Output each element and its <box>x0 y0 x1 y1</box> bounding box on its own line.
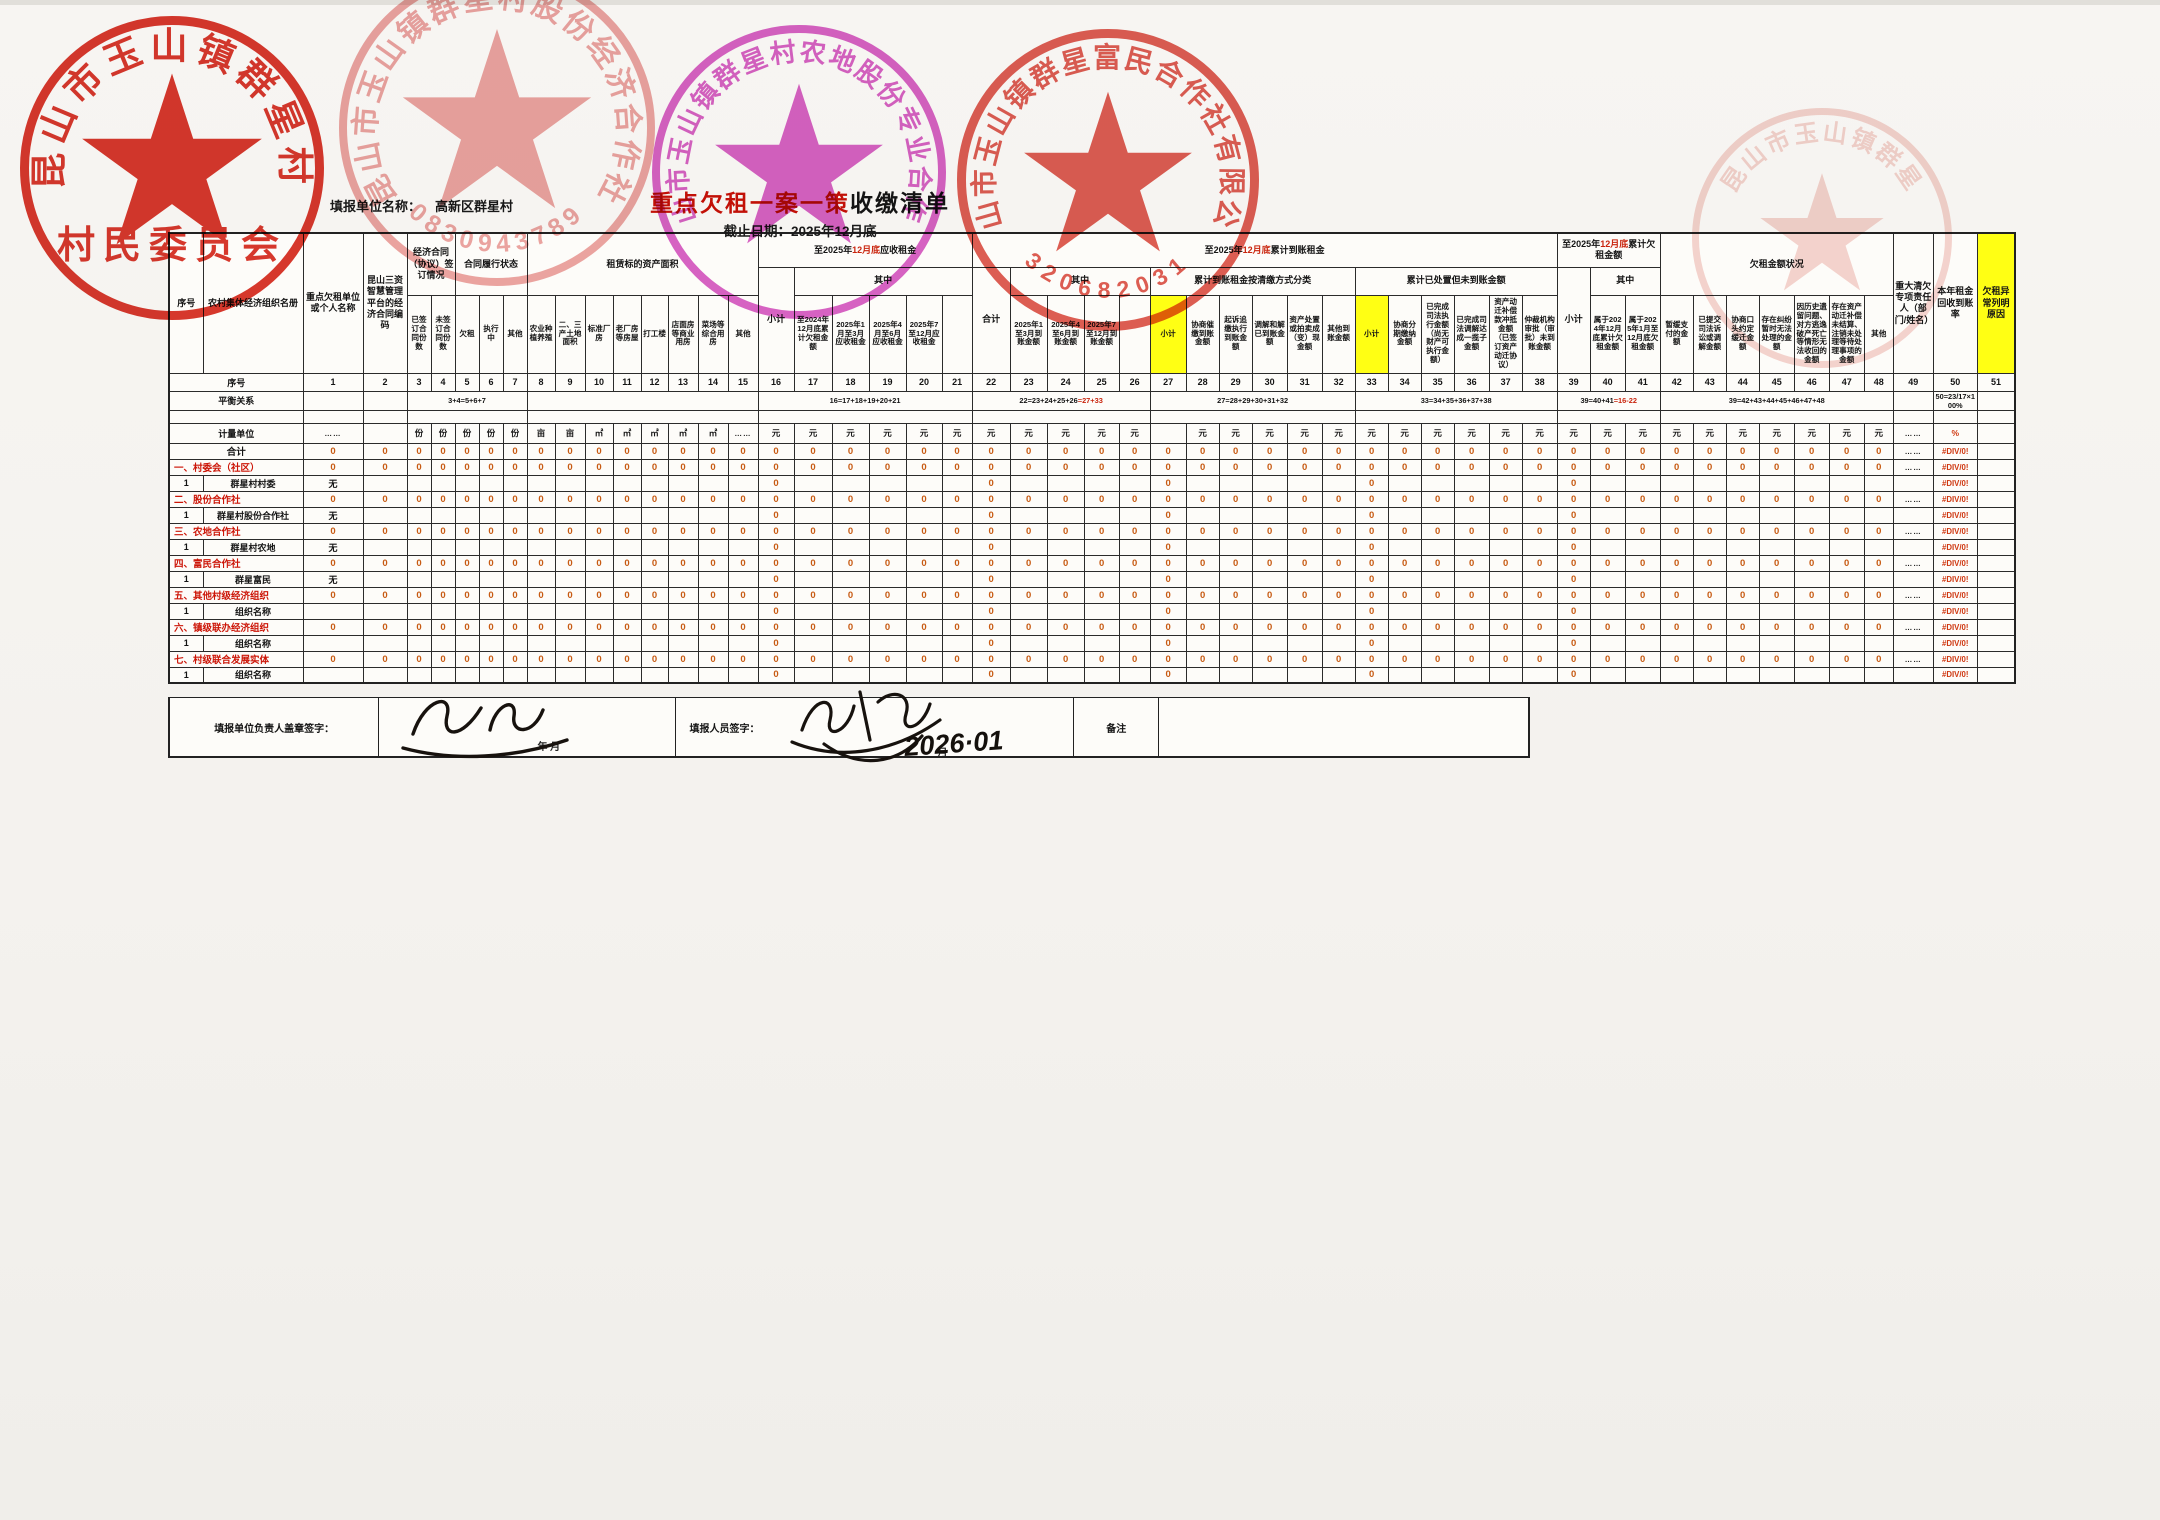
header-text-part: 至2025年 <box>814 245 852 255</box>
value-cell: 0 <box>972 507 1010 523</box>
value-cell <box>1759 475 1794 491</box>
value-cell <box>1322 539 1355 555</box>
value-cell <box>1421 603 1454 619</box>
value-cell: 0 <box>698 523 728 539</box>
debtor-name-cell: 无 <box>303 539 363 555</box>
value-cell: 0 <box>1864 523 1893 539</box>
value-cell: 0 <box>1010 587 1047 603</box>
spacer-cell <box>407 410 527 423</box>
value-cell: #DIV/0! <box>1933 619 1977 635</box>
value-cell <box>1693 667 1726 683</box>
value-cell: 0 <box>668 587 698 603</box>
value-cell <box>1590 667 1625 683</box>
value-cell: 0 <box>758 603 794 619</box>
value-cell <box>1660 571 1693 587</box>
value-cell <box>1794 603 1829 619</box>
value-cell <box>906 667 942 683</box>
value-cell: 0 <box>758 635 794 651</box>
value-cell <box>1590 635 1625 651</box>
value-cell <box>668 571 698 587</box>
value-cell <box>503 475 527 491</box>
serial-row-label: 序号 <box>169 373 303 391</box>
value-cell: 0 <box>728 587 758 603</box>
value-cell <box>1119 507 1150 523</box>
value-cell: 0 <box>585 523 613 539</box>
value-cell: …… <box>1893 651 1933 667</box>
debtor-name-cell <box>303 635 363 651</box>
value-cell <box>1893 475 1933 491</box>
column-header: 资产处置或拍卖成（变）现金额 <box>1287 295 1322 373</box>
value-cell <box>363 507 407 523</box>
value-cell <box>455 539 479 555</box>
value-cell: 0 <box>407 443 431 459</box>
value-cell: 0 <box>869 523 906 539</box>
organization-name: 群星村农地 <box>203 539 303 555</box>
value-cell: 0 <box>407 491 431 507</box>
value-cell: 0 <box>555 651 585 667</box>
value-cell: 0 <box>1010 443 1047 459</box>
unit-cell: ㎡ <box>698 423 728 443</box>
value-cell: 0 <box>942 619 972 635</box>
value-cell: 0 <box>1119 459 1150 475</box>
column-number: 45 <box>1759 373 1794 391</box>
value-cell: 0 <box>613 619 641 635</box>
balance-formula: 33=34+35+36+37+38 <box>1355 391 1557 410</box>
column-number: 23 <box>1010 373 1047 391</box>
value-cell <box>1522 603 1557 619</box>
value-cell: 0 <box>1322 619 1355 635</box>
value-cell: 0 <box>1590 523 1625 539</box>
value-cell <box>1977 443 2015 459</box>
formula-black: 16=17+18+19+20+21 <box>830 396 901 405</box>
value-cell: 0 <box>1454 555 1489 571</box>
value-cell: 0 <box>503 651 527 667</box>
value-cell: 0 <box>1726 651 1759 667</box>
value-cell <box>1660 603 1693 619</box>
value-cell <box>1977 603 2015 619</box>
value-cell <box>431 603 455 619</box>
column-header: 其他 <box>728 295 758 373</box>
value-cell: 0 <box>503 555 527 571</box>
category-label: 四、富民合作社 <box>169 555 303 571</box>
value-cell: 0 <box>1388 459 1421 475</box>
value-cell: 0 <box>455 587 479 603</box>
value-cell: 0 <box>972 667 1010 683</box>
category-label: 三、农地合作社 <box>169 523 303 539</box>
value-cell <box>668 635 698 651</box>
value-cell: 0 <box>1660 491 1693 507</box>
value-cell <box>1660 507 1693 523</box>
value-cell <box>1625 571 1660 587</box>
formula-black: 22=23+24+25+26 <box>1019 396 1077 405</box>
value-cell <box>728 475 758 491</box>
formula-red: =16-22 <box>1614 396 1637 405</box>
value-cell: 0 <box>1219 651 1252 667</box>
value-cell <box>942 571 972 587</box>
scanned-document-page: { "document": { "title_red": "重点欠租一案一策",… <box>0 0 2160 1520</box>
value-cell <box>942 667 972 683</box>
unit-cell: 元 <box>1522 423 1557 443</box>
value-cell: 0 <box>1150 555 1186 571</box>
value-cell: 0 <box>668 491 698 507</box>
value-cell: 0 <box>869 555 906 571</box>
column-header: 调解和解已到账金额 <box>1252 295 1287 373</box>
value-cell: 0 <box>1186 587 1219 603</box>
value-cell: 0 <box>1693 555 1726 571</box>
value-cell <box>1794 667 1829 683</box>
value-cell: 0 <box>585 459 613 475</box>
value-cell <box>527 667 555 683</box>
value-cell: 0 <box>1119 555 1150 571</box>
value-cell: 0 <box>758 587 794 603</box>
value-cell <box>503 539 527 555</box>
column-group-header: 重大清欠专项责任人（部门/姓名） <box>1893 233 1933 373</box>
value-cell: 0 <box>698 587 728 603</box>
value-cell: 0 <box>1829 555 1864 571</box>
column-header: 其他到账金额 <box>1322 295 1355 373</box>
value-cell <box>832 475 869 491</box>
value-cell <box>1322 475 1355 491</box>
value-cell <box>942 635 972 651</box>
value-cell: 0 <box>1726 523 1759 539</box>
value-cell <box>1219 603 1252 619</box>
value-cell <box>1421 635 1454 651</box>
value-cell <box>1047 603 1084 619</box>
value-cell <box>1322 667 1355 683</box>
value-cell: 0 <box>431 587 455 603</box>
spacer-cell <box>1557 410 1660 423</box>
value-cell: 0 <box>1794 619 1829 635</box>
value-cell: 0 <box>1219 459 1252 475</box>
value-cell <box>1252 635 1287 651</box>
page-title-red-part: 重点欠租一案一策 <box>650 190 850 216</box>
header-text-part: 12月底 <box>1600 239 1628 249</box>
category-label: 七、村级联合发展实体 <box>169 651 303 667</box>
value-cell: …… <box>1893 459 1933 475</box>
value-cell <box>1119 539 1150 555</box>
value-cell: 0 <box>1557 635 1590 651</box>
value-cell: 0 <box>363 619 407 635</box>
value-cell: 0 <box>1150 587 1186 603</box>
value-cell <box>1388 475 1421 491</box>
column-subgroup-header: 小计 <box>758 267 794 373</box>
page-title-black-part: 收缴清单 <box>850 190 950 216</box>
value-cell: 0 <box>1322 523 1355 539</box>
value-cell <box>1829 571 1864 587</box>
category-row: 一、村委会（社区）0000000000000000000000000000000… <box>169 459 2015 475</box>
value-cell: 0 <box>1829 459 1864 475</box>
unit-cell: 元 <box>1829 423 1864 443</box>
column-number: 40 <box>1590 373 1625 391</box>
unit-cell: 份 <box>503 423 527 443</box>
organization-row: 1群星村村委无00000#DIV/0! <box>169 475 2015 491</box>
value-cell: 0 <box>1047 587 1084 603</box>
report-unit-value: 高新区群星村 <box>435 199 513 214</box>
unit-cell: 元 <box>1084 423 1119 443</box>
value-cell: 0 <box>1693 587 1726 603</box>
value-cell <box>869 507 906 523</box>
value-cell: 0 <box>1557 507 1590 523</box>
column-number: 18 <box>832 373 869 391</box>
value-cell: 0 <box>641 459 668 475</box>
value-cell <box>363 539 407 555</box>
column-header: 2025年7至12月到账金额 <box>1084 295 1119 373</box>
value-cell: 0 <box>869 443 906 459</box>
value-cell <box>503 667 527 683</box>
unit-cell: ㎡ <box>668 423 698 443</box>
value-cell: 0 <box>407 523 431 539</box>
month-suffix: 月 <box>938 744 948 759</box>
column-number: 41 <box>1625 373 1660 391</box>
spacer-cell <box>1893 410 1933 423</box>
value-cell: 0 <box>972 651 1010 667</box>
value-cell <box>407 667 431 683</box>
value-cell: 0 <box>1489 459 1522 475</box>
value-cell <box>585 539 613 555</box>
value-cell: 0 <box>1150 507 1186 523</box>
value-cell: 0 <box>1489 651 1522 667</box>
row-seq: 1 <box>169 539 203 555</box>
value-cell: 0 <box>303 587 363 603</box>
column-header: 已签订合同份数 <box>407 295 431 373</box>
value-cell: 0 <box>527 619 555 635</box>
value-cell <box>1977 571 2015 587</box>
organization-name: 组织名称 <box>203 635 303 651</box>
spacer-cell <box>1660 410 1893 423</box>
value-cell <box>1186 475 1219 491</box>
unit-cell: 元 <box>1726 423 1759 443</box>
value-cell: 0 <box>668 619 698 635</box>
column-number: 43 <box>1693 373 1726 391</box>
value-cell: 0 <box>1759 459 1794 475</box>
value-cell <box>1287 635 1322 651</box>
value-cell <box>1590 539 1625 555</box>
value-cell: 0 <box>1388 443 1421 459</box>
balance-formula <box>1893 391 1933 410</box>
value-cell: 0 <box>613 523 641 539</box>
formula-red: =27+33 <box>1078 396 1103 405</box>
filler-signature-label: 填报人员签字： <box>676 720 760 735</box>
leader-signature-label-cell: 填报单位负责人盖章签字： <box>170 698 379 756</box>
value-cell: 0 <box>832 555 869 571</box>
unit-row-label: 计量单位 <box>169 423 303 443</box>
value-cell <box>906 635 942 651</box>
value-cell: 0 <box>527 555 555 571</box>
value-cell: 0 <box>1522 443 1557 459</box>
value-cell <box>1119 635 1150 651</box>
value-cell <box>1522 635 1557 651</box>
value-cell: 0 <box>758 475 794 491</box>
unit-cell: 元 <box>758 423 794 443</box>
unit-cell: 元 <box>869 423 906 443</box>
value-cell <box>1322 635 1355 651</box>
value-cell <box>1219 667 1252 683</box>
value-cell: 0 <box>407 619 431 635</box>
value-cell: 0 <box>1219 523 1252 539</box>
value-cell: 0 <box>869 651 906 667</box>
value-cell: 0 <box>832 651 869 667</box>
value-cell: 0 <box>1625 619 1660 635</box>
value-cell <box>668 539 698 555</box>
value-cell <box>906 571 942 587</box>
value-cell <box>794 539 832 555</box>
value-cell <box>555 475 585 491</box>
column-group-header: 至2025年12月底累计欠租金额 <box>1557 233 1660 267</box>
value-cell: 0 <box>728 443 758 459</box>
value-cell <box>1454 635 1489 651</box>
organization-row: 1群星富民无00000#DIV/0! <box>169 571 2015 587</box>
value-cell: 0 <box>1084 459 1119 475</box>
column-header: 存在纠纷暂时无法处理的金额 <box>1759 295 1794 373</box>
column-group-header: 农村集体经济组织名册 <box>203 233 303 373</box>
value-cell: 0 <box>1084 555 1119 571</box>
value-cell <box>1864 507 1893 523</box>
unit-cell: 元 <box>1625 423 1660 443</box>
value-cell: 0 <box>1489 555 1522 571</box>
unit-cell: ㎡ <box>613 423 641 443</box>
spacer-cell <box>527 410 758 423</box>
value-cell <box>1287 539 1322 555</box>
value-cell: 0 <box>758 507 794 523</box>
value-cell: 0 <box>503 443 527 459</box>
value-cell: 0 <box>1186 651 1219 667</box>
value-cell: 0 <box>1119 619 1150 635</box>
column-header: 仲裁机构审批（审批）未到账金额 <box>1522 295 1557 373</box>
spacer-cell <box>1150 410 1355 423</box>
value-cell: 0 <box>1287 491 1322 507</box>
column-number: 25 <box>1084 373 1119 391</box>
value-cell <box>1186 635 1219 651</box>
value-cell <box>1287 475 1322 491</box>
balance-formula <box>1977 391 2015 410</box>
value-cell: 0 <box>1693 459 1726 475</box>
unit-cell: 元 <box>1047 423 1084 443</box>
leader-signature-cell: 年 月 <box>379 698 675 756</box>
value-cell <box>698 539 728 555</box>
value-cell <box>1454 667 1489 683</box>
value-cell <box>1219 635 1252 651</box>
value-cell: 0 <box>613 459 641 475</box>
value-cell: 0 <box>1829 651 1864 667</box>
value-cell: 0 <box>1355 619 1388 635</box>
unit-cell: 元 <box>1322 423 1355 443</box>
value-cell: 0 <box>363 587 407 603</box>
value-cell: 0 <box>972 619 1010 635</box>
value-cell: 0 <box>455 555 479 571</box>
value-cell: 0 <box>455 459 479 475</box>
value-cell <box>1794 507 1829 523</box>
unit-cell: ㎡ <box>585 423 613 443</box>
value-cell: 0 <box>1252 523 1287 539</box>
value-cell <box>1119 667 1150 683</box>
value-cell: 0 <box>1794 651 1829 667</box>
value-cell <box>1322 507 1355 523</box>
value-cell: 0 <box>1557 651 1590 667</box>
value-cell: …… <box>1893 443 1933 459</box>
value-cell: 0 <box>1489 587 1522 603</box>
value-cell: 0 <box>1864 619 1893 635</box>
value-cell: 0 <box>972 603 1010 619</box>
value-cell <box>613 635 641 651</box>
value-cell: 0 <box>794 459 832 475</box>
column-header: 其他 <box>1864 295 1893 373</box>
debtor-name-cell: 无 <box>303 507 363 523</box>
value-cell <box>1388 603 1421 619</box>
value-cell: #DIV/0! <box>1933 571 1977 587</box>
value-cell <box>1119 603 1150 619</box>
scanner-edge-artifact <box>0 0 2160 5</box>
value-cell: 0 <box>1557 459 1590 475</box>
category-label: 一、村委会（社区） <box>169 459 303 475</box>
value-cell: 0 <box>1794 555 1829 571</box>
balance-relation-row: 平衡关系3+4=5+6+716=17+18+19+20+2122=23+24+2… <box>169 391 2015 410</box>
unit-cell: …… <box>303 423 363 443</box>
value-cell: 0 <box>942 459 972 475</box>
value-cell: 0 <box>1047 443 1084 459</box>
value-cell <box>1010 571 1047 587</box>
value-cell: 0 <box>555 619 585 635</box>
value-cell: 0 <box>1150 539 1186 555</box>
row-seq: 1 <box>169 603 203 619</box>
column-number: 17 <box>794 373 832 391</box>
value-cell <box>455 507 479 523</box>
value-cell: 0 <box>1489 443 1522 459</box>
value-cell <box>555 539 585 555</box>
value-cell <box>527 635 555 651</box>
value-cell: 0 <box>794 523 832 539</box>
value-cell <box>869 539 906 555</box>
spacer-cell <box>758 410 972 423</box>
value-cell: 0 <box>1010 523 1047 539</box>
value-cell <box>1047 475 1084 491</box>
value-cell <box>832 571 869 587</box>
value-cell <box>1977 539 2015 555</box>
value-cell: 0 <box>942 651 972 667</box>
value-cell: 0 <box>1010 619 1047 635</box>
column-number: 22 <box>972 373 1010 391</box>
value-cell: 0 <box>942 443 972 459</box>
column-group-header: 欠租异常列明原因 <box>1977 233 2015 373</box>
column-subgroup-header: 累计到账租金按清缴方式分类 <box>1150 267 1355 295</box>
value-cell: 0 <box>794 443 832 459</box>
column-group-header: 重点欠租单位或个人名称 <box>303 233 363 373</box>
debtor-name-cell <box>303 667 363 683</box>
balance-formula: 27=28+29+30+31+32 <box>1150 391 1355 410</box>
value-cell: 0 <box>1287 523 1322 539</box>
value-cell <box>555 507 585 523</box>
value-cell: 0 <box>1355 443 1388 459</box>
header-text-part: 累计到账租金 <box>1271 245 1325 255</box>
total-label: 合计 <box>169 443 303 459</box>
value-cell: 0 <box>1454 459 1489 475</box>
collection-list-table: 序号农村集体经济组织名册重点欠租单位或个人名称昆山三资智慧管理平台的经济合同编码… <box>168 232 2016 684</box>
value-cell: 0 <box>1590 459 1625 475</box>
debtor-name-cell: 无 <box>303 475 363 491</box>
total-row: 合计00000000000000000000000000000000000000… <box>169 443 2015 459</box>
column-number: 37 <box>1489 373 1522 391</box>
column-header: 标准厂房 <box>585 295 613 373</box>
value-cell: 0 <box>1864 459 1893 475</box>
value-cell: #DIV/0! <box>1933 459 1977 475</box>
value-cell <box>1977 523 2015 539</box>
column-header: 因历史遗留问题、对方逃逸破产死亡等情形无法收回的金额 <box>1794 295 1829 373</box>
value-cell <box>1977 459 2015 475</box>
column-number: 11 <box>613 373 641 391</box>
value-cell <box>1759 667 1794 683</box>
value-cell <box>1625 667 1660 683</box>
value-cell: 0 <box>1693 443 1726 459</box>
column-number: 34 <box>1388 373 1421 391</box>
